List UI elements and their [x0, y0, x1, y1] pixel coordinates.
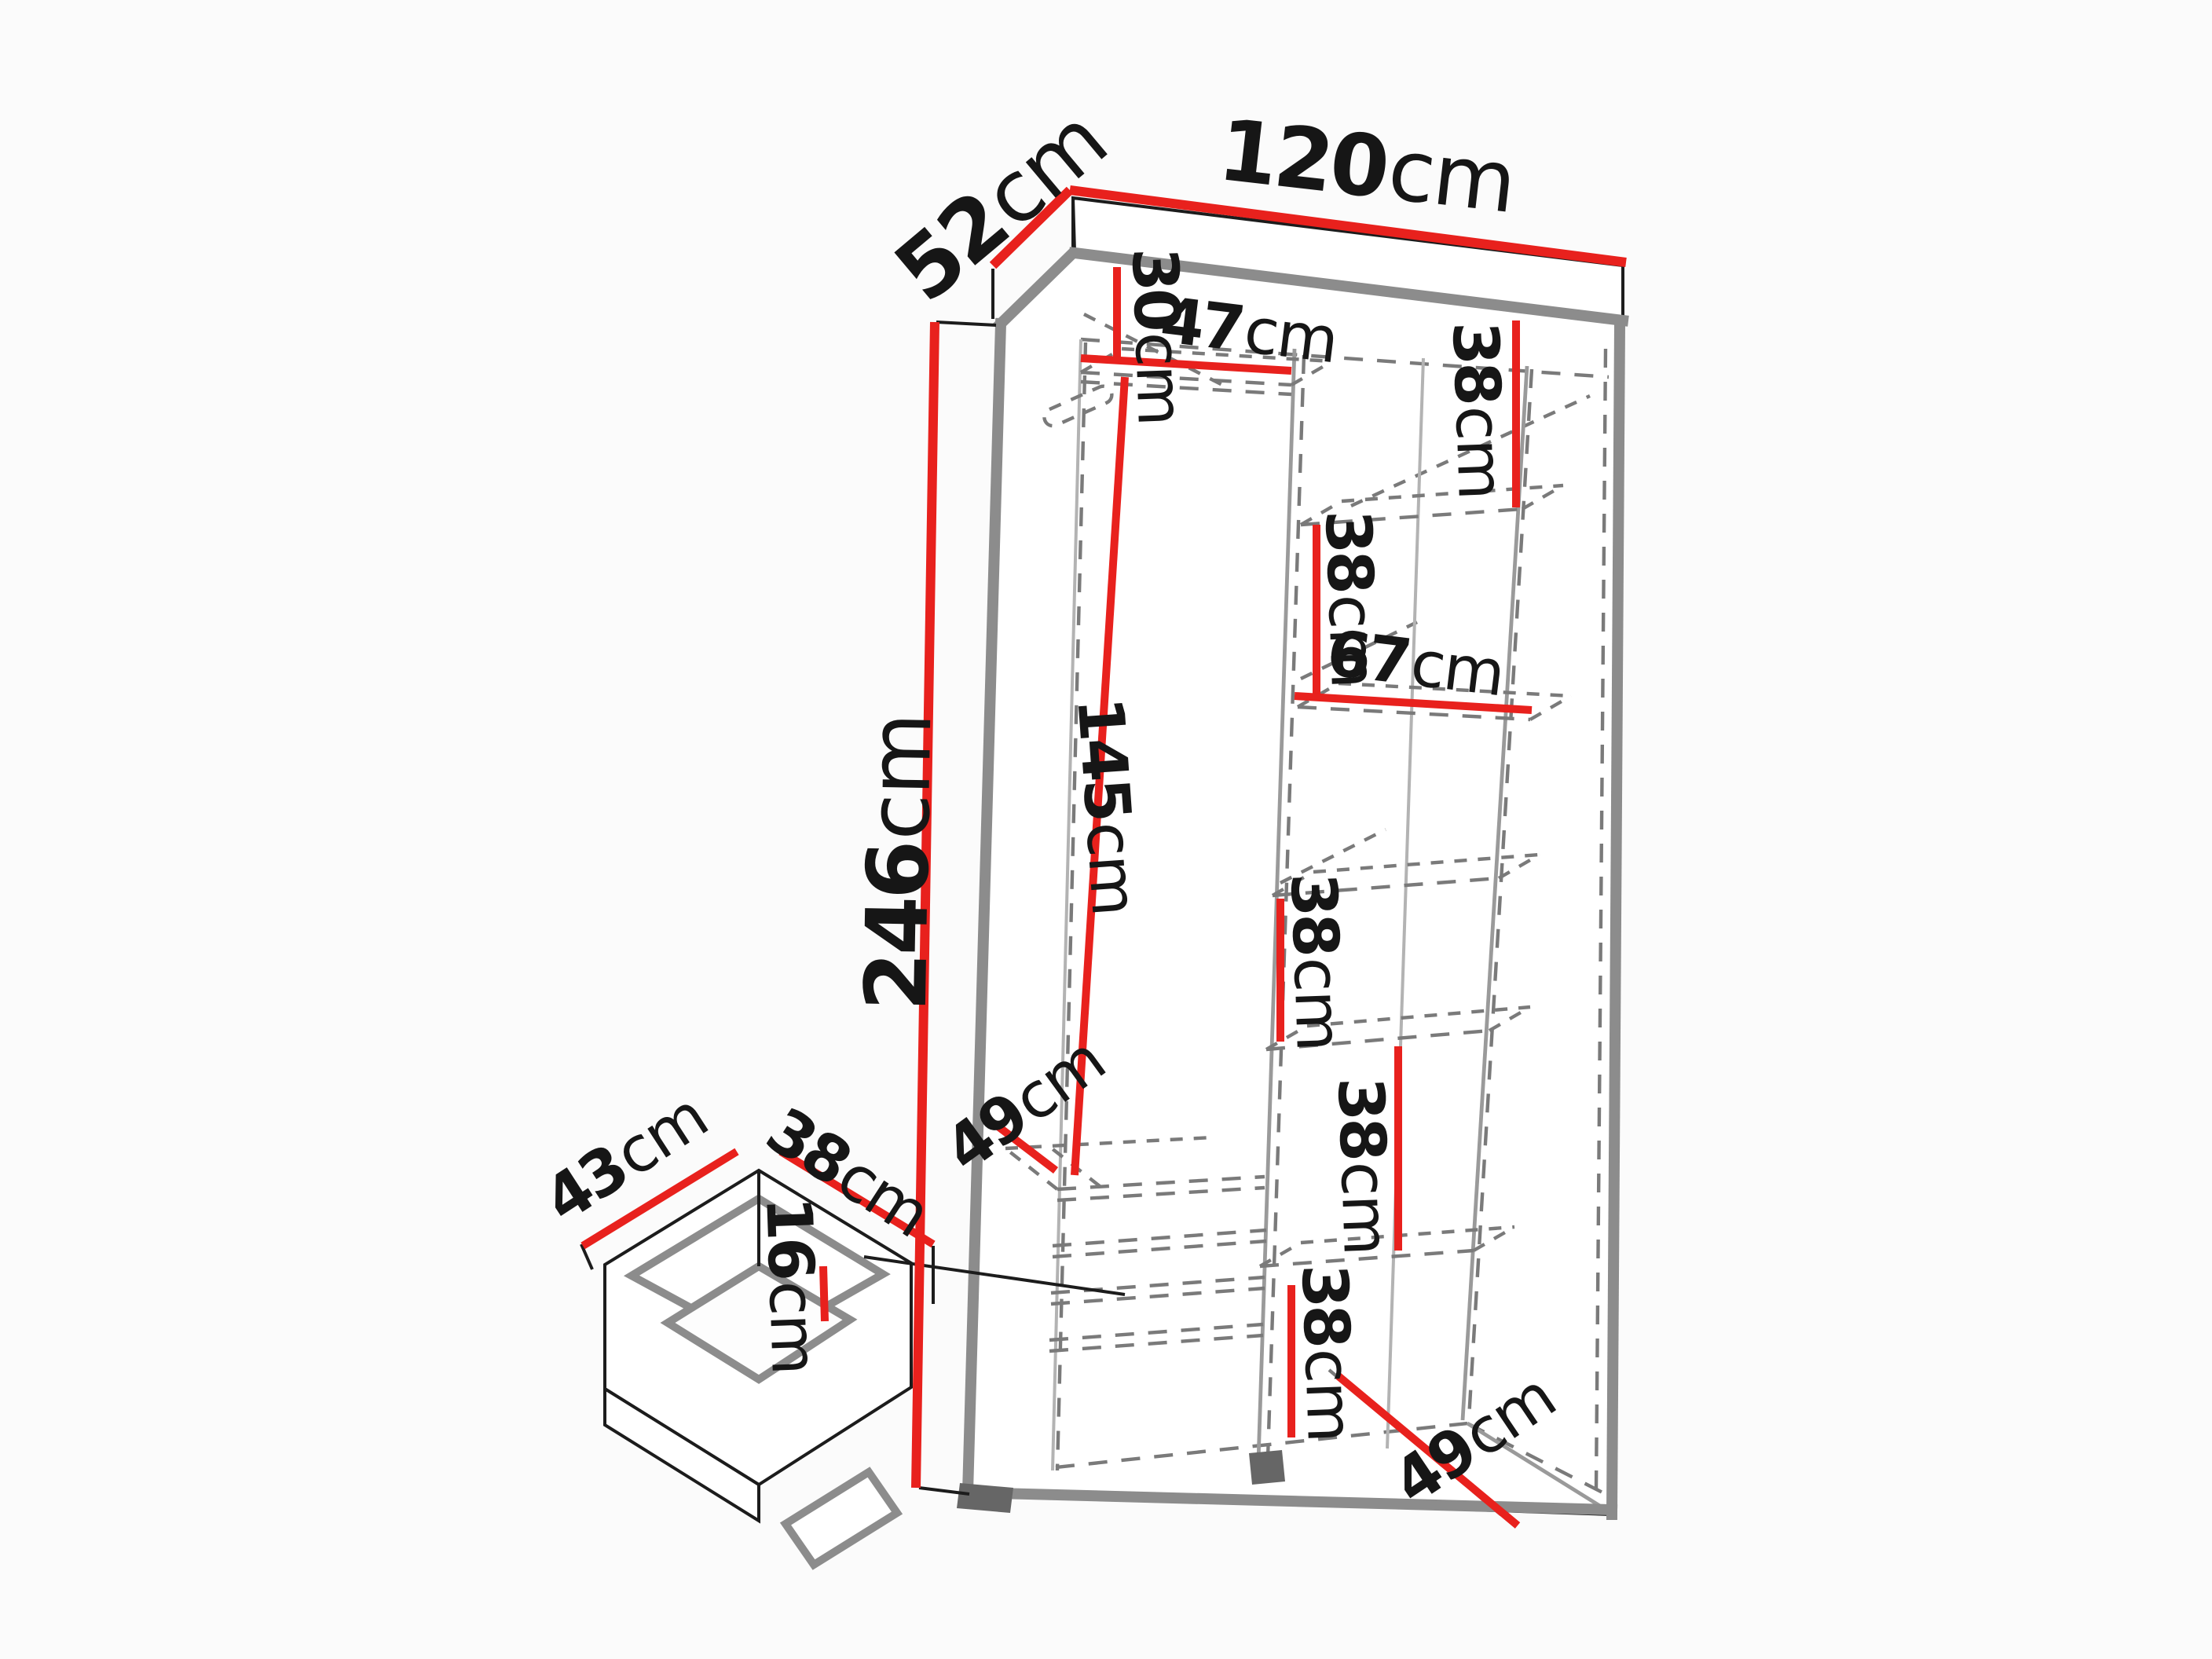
- label-hanging-space: 145cm: [1064, 695, 1152, 917]
- label-drawer-height: 16cm: [753, 1196, 832, 1375]
- label-shelf-gap-4: 38cm: [1324, 1076, 1404, 1255]
- label-shelf-gap-3: 38cm: [1277, 872, 1357, 1051]
- right-outer-edge: [1612, 325, 1620, 1514]
- wardrobe-foot: [957, 1483, 1013, 1513]
- label-bottom-section-height: 38cm: [1288, 1263, 1368, 1442]
- label-height: 246cm: [847, 713, 950, 1012]
- label-shelf-gap-1: 38cm: [1439, 320, 1518, 500]
- wardrobe-foot: [1249, 1450, 1285, 1485]
- wardrobe-dimension-diagram: 120cm 52cm 246cm 30cm 47cm 38cm 38cm 67c…: [0, 0, 2212, 1659]
